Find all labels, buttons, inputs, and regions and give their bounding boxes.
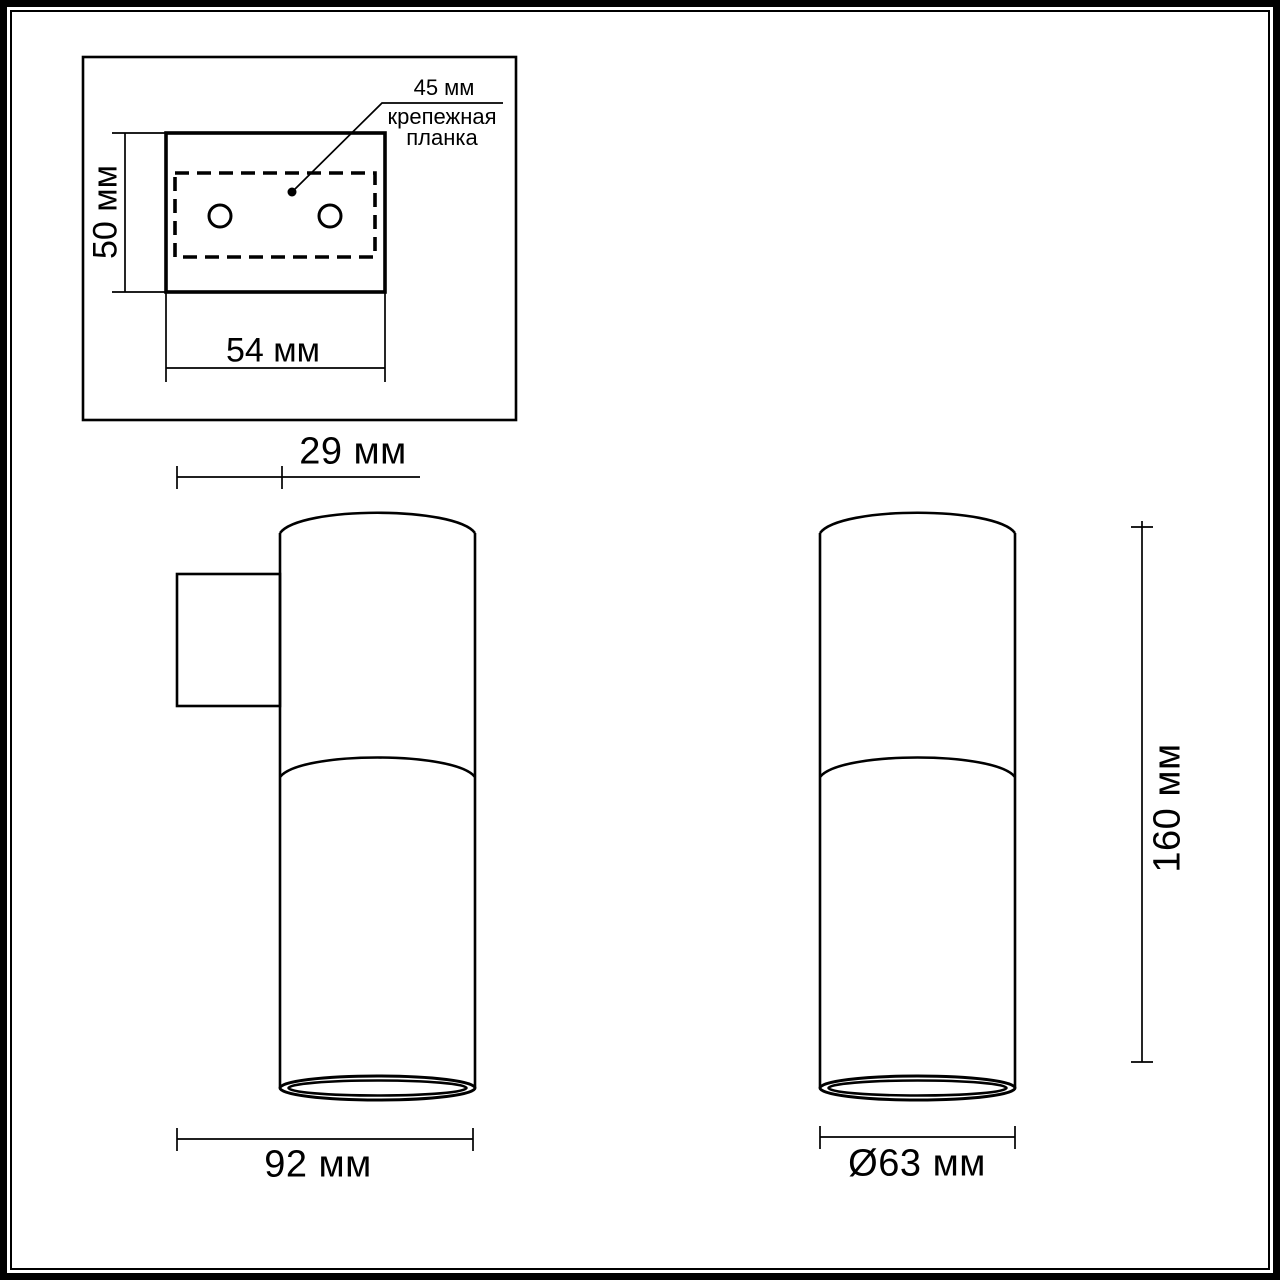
bracket-length-label: 45 мм [414,75,475,101]
wall-bracket-outline [177,574,280,706]
plate-width-label: 54 мм [226,332,320,371]
technical-drawing-page: 45 мм крепежная планка 50 мм 54 мм 29 мм… [0,0,1280,1280]
bracket-callout-line1: крепежная [387,106,496,127]
fixture-body-front [820,513,1015,1100]
bracket-depth-label: 29 мм [299,431,407,474]
total-depth-label: 92 мм [264,1144,372,1187]
bracket-callout-line2: планка [387,127,496,148]
fixture-height-label: 160 мм [1147,743,1190,872]
mount-hole-left [209,205,231,227]
mount-plate-outline [166,133,385,292]
bracket-callout: крепежная планка [387,106,496,148]
drawing-canvas [0,0,1280,1280]
body-seam-side [280,758,475,778]
diameter-label: Ø63 мм [848,1143,986,1186]
side-view [177,466,475,1151]
mount-bracket-dashed-outline [175,173,375,257]
plate-height-label: 50 мм [87,165,126,259]
bottom-rim-inner-front [829,1081,1007,1096]
body-seam-front [820,758,1015,778]
mount-hole-right [319,205,341,227]
fixture-body-side [280,513,475,1100]
front-view [820,513,1153,1149]
bottom-rim-inner-side [289,1081,467,1096]
